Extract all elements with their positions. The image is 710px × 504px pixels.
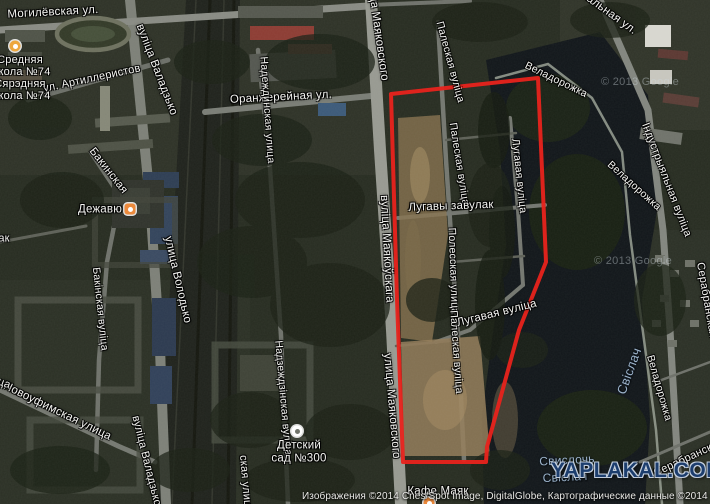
street-label: ца Маяковского <box>366 0 389 82</box>
street-label: Серабранская <box>694 262 710 339</box>
poi-label[interactable]: Средняя школа №74 Сярэдняя школа №74 <box>0 54 51 102</box>
google-tile-watermark: © 2013 Google <box>601 76 679 88</box>
poi-label[interactable]: Детский сад №300 <box>271 439 326 464</box>
street-label: Оранжерейная ул. <box>230 90 333 107</box>
street-label: улица Маяковского <box>381 353 402 459</box>
street-label: ская улица <box>237 455 253 504</box>
water-label: Свіслач <box>615 346 644 396</box>
google-tile-watermark: © 2013 Google <box>594 255 672 267</box>
yaplakal-watermark: YAPLAKAL.COM <box>551 459 710 483</box>
street-label: Бакинская <box>87 146 129 196</box>
copyright-attribution: Изображения ©2014 Cnes/Spot Image, Digit… <box>302 491 710 502</box>
street-label: Полесская улица <box>446 227 460 314</box>
street-label: Лугавы завулак <box>408 200 494 214</box>
kindergarten-poi-icon[interactable] <box>292 426 303 437</box>
street-label: Надеждинская улица <box>258 56 276 164</box>
street-label: вуліца Маякоўскага <box>377 195 394 303</box>
school-poi-icon[interactable] <box>10 41 21 52</box>
street-label: Палеская вуліца <box>434 20 466 103</box>
street-label: Палеская вуліца <box>447 122 470 206</box>
street-label: улица Володько <box>161 236 192 325</box>
street-label: Могилёвская ул. <box>7 5 99 21</box>
poi-label[interactable]: Дежавю <box>78 204 122 217</box>
street-label: Новоуфимская улица <box>1 381 112 443</box>
map-viewport[interactable]: Могилёвская ул.ул. Артиллеристоввуліца В… <box>0 0 710 504</box>
street-label: Індустрыяльная вуліца <box>639 121 693 238</box>
street-label: ак <box>0 234 10 245</box>
labels-layer: Могилёвская ул.ул. Артиллеристоввуліца В… <box>0 0 710 504</box>
street-label: Лугавая вуліца <box>456 299 538 330</box>
street-label: Веладорожка <box>523 60 589 99</box>
street-label: Веладорожка <box>645 354 674 422</box>
street-label: ул. Артиллеристов <box>42 63 141 94</box>
street-label: Веладорожка <box>605 159 662 212</box>
restaurant-poi-icon[interactable] <box>125 204 136 215</box>
street-label: Лугавая вуліца <box>510 138 528 214</box>
street-label: Индустриальная ул. <box>542 0 639 37</box>
street-label: вуліца Валадзько <box>129 415 162 504</box>
street-label: Бакінская вуліца <box>90 267 109 351</box>
